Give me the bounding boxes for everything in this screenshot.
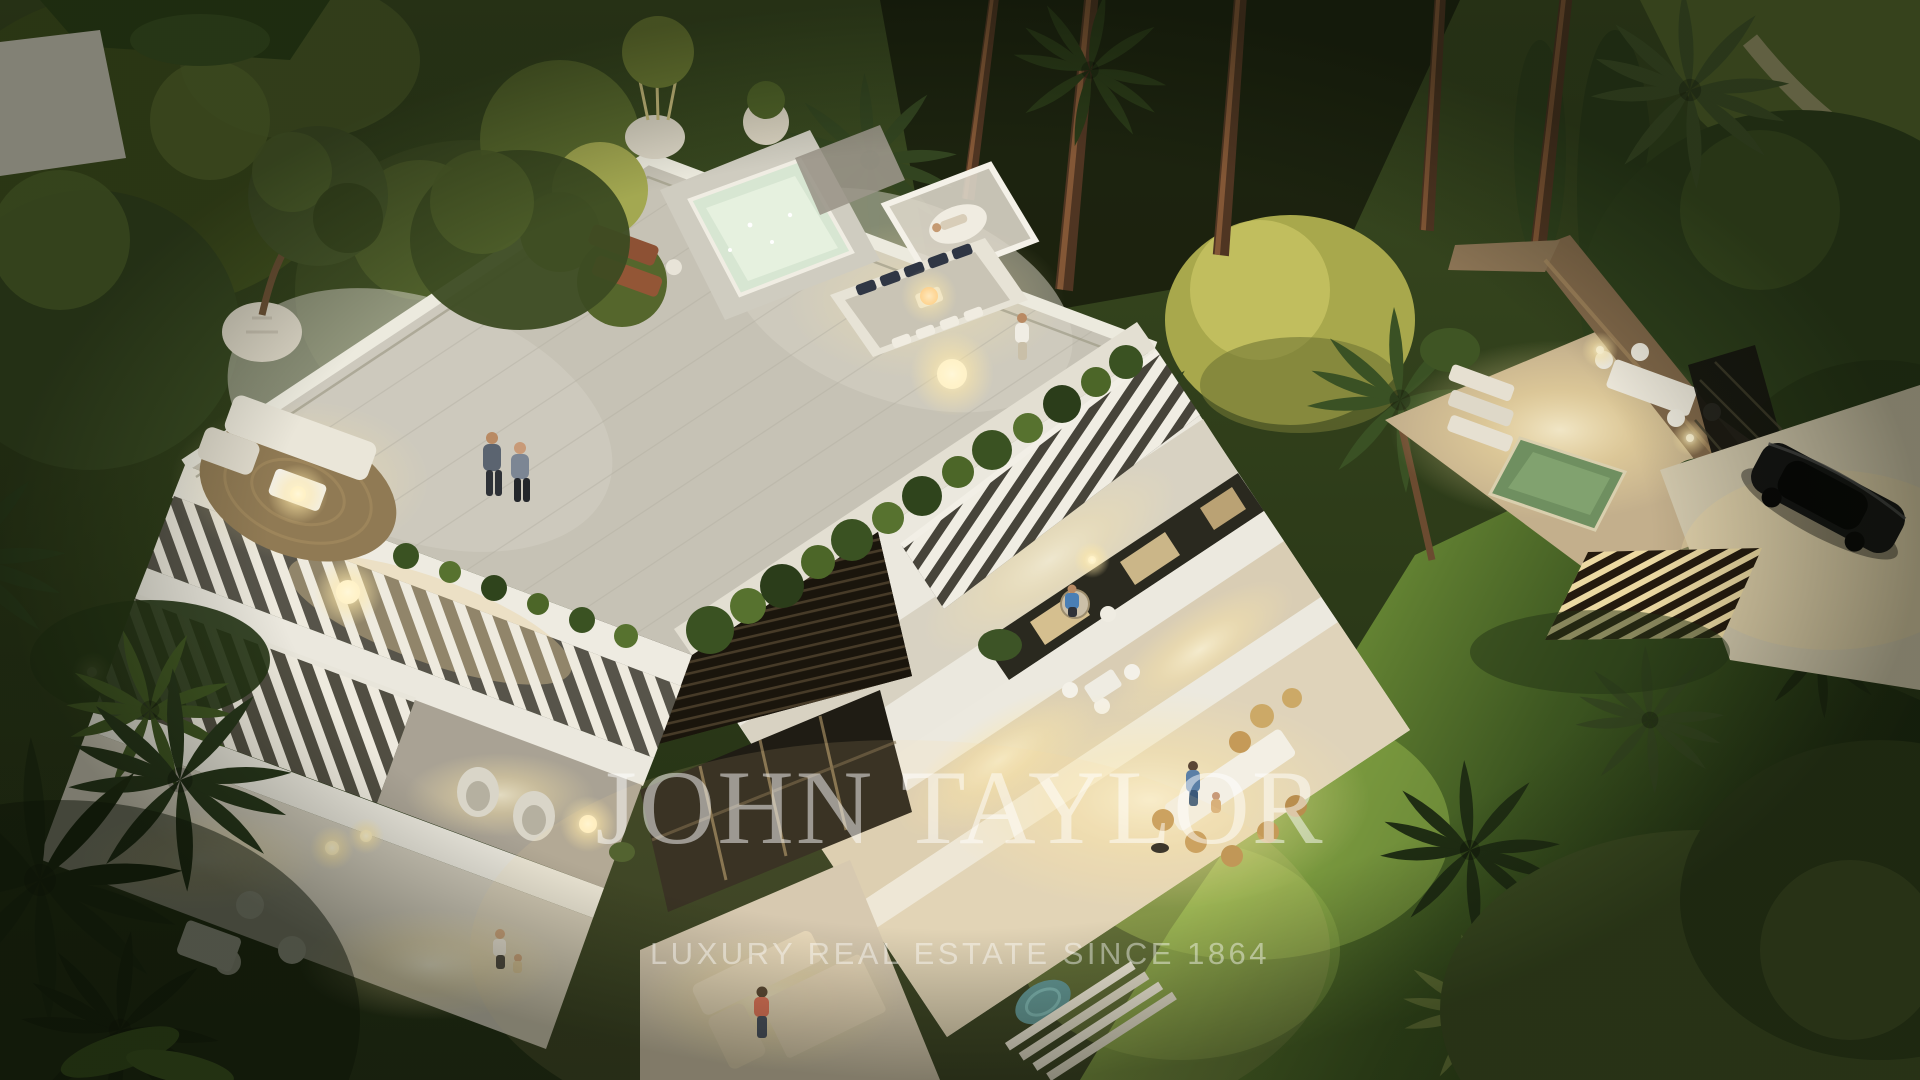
vignette: [0, 0, 1920, 1080]
villa-aerial-render: JOHN TAYLOR LUXURY REAL ESTATE SINCE 186…: [0, 0, 1920, 1080]
scene-illustration: [0, 0, 1920, 1080]
